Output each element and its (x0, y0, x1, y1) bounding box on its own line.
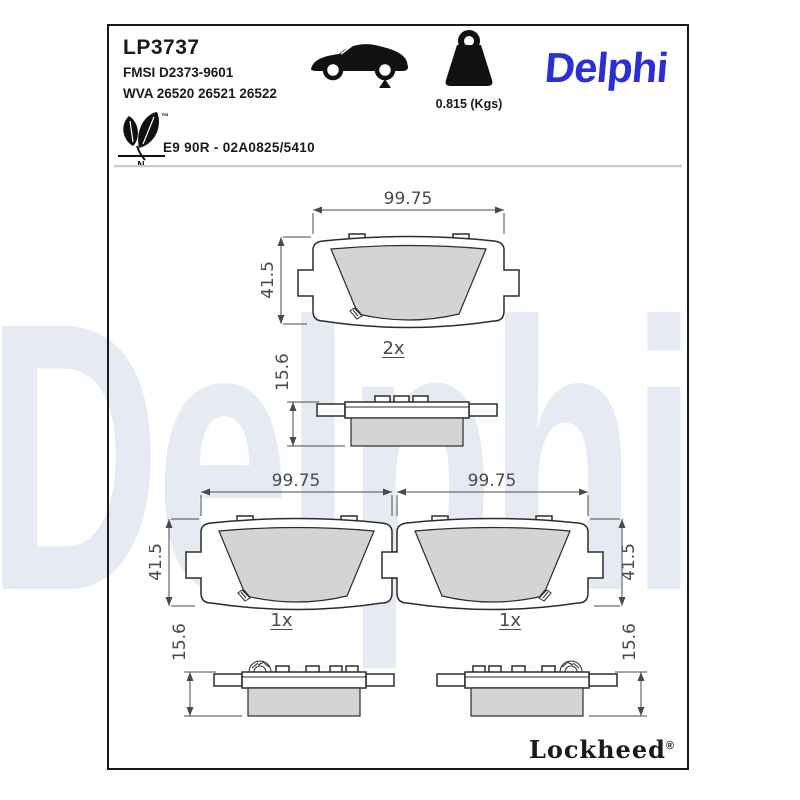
spring-clip (560, 661, 582, 672)
dim-width: 99.75 (384, 190, 433, 209)
weight-block: 0.815 (Kgs) (409, 30, 529, 111)
part-number: LP3737 (123, 36, 200, 60)
lockheed-logo: Lockheed® (529, 735, 675, 764)
backplate-shape (186, 516, 407, 610)
weight-icon (440, 30, 498, 90)
side-profile-shape (437, 661, 617, 716)
dim-width: 99.75 (468, 472, 517, 491)
pad-side-view-bottom-right: 15.6 (407, 597, 677, 727)
dim-height: 41.5 (261, 261, 278, 299)
registered-symbol: ® (666, 740, 675, 752)
weight-value: 0.815 (Kgs) (409, 97, 529, 111)
rear-axle-arrow-icon (379, 79, 391, 88)
wva-reference: WVA 26520 26521 26522 (123, 86, 277, 101)
pad-side-view-bottom-left: 15.6 (154, 597, 424, 727)
spring-clip (249, 661, 271, 672)
brake-pad-datasheet: Delphi LP3737 FMSI D2373-9601 WVA 26520 … (0, 0, 800, 800)
side-profile-shape (317, 396, 497, 446)
header-divider (114, 165, 682, 168)
lockheed-wordmark: Lockheed (529, 735, 666, 764)
dim-thickness: 15.6 (273, 353, 293, 391)
backplate-shape (382, 516, 603, 610)
pad-front-view-top: 99.75 41.5 (261, 190, 526, 350)
dim-thickness: 15.6 (170, 623, 190, 661)
dim-height: 41.5 (619, 543, 639, 581)
approval-number: E9 90R - 02A0825/5410 (163, 140, 315, 155)
pad-side-view-top: 15.6 (257, 327, 527, 457)
page-border: LP3737 FMSI D2373-9601 WVA 26520 26521 2… (107, 24, 689, 770)
backplate-shape (298, 234, 519, 328)
dim-height: 41.5 (149, 543, 166, 581)
dim-thickness: 15.6 (620, 623, 640, 661)
fmsi-reference: FMSI D2373-9601 (123, 65, 233, 80)
delphi-logo: Delphi (543, 44, 670, 92)
side-profile-shape (214, 661, 394, 716)
car-rear-axle-icon (305, 34, 415, 92)
dim-width: 99.75 (272, 472, 321, 491)
trademark-symbol: ™ (161, 112, 169, 121)
